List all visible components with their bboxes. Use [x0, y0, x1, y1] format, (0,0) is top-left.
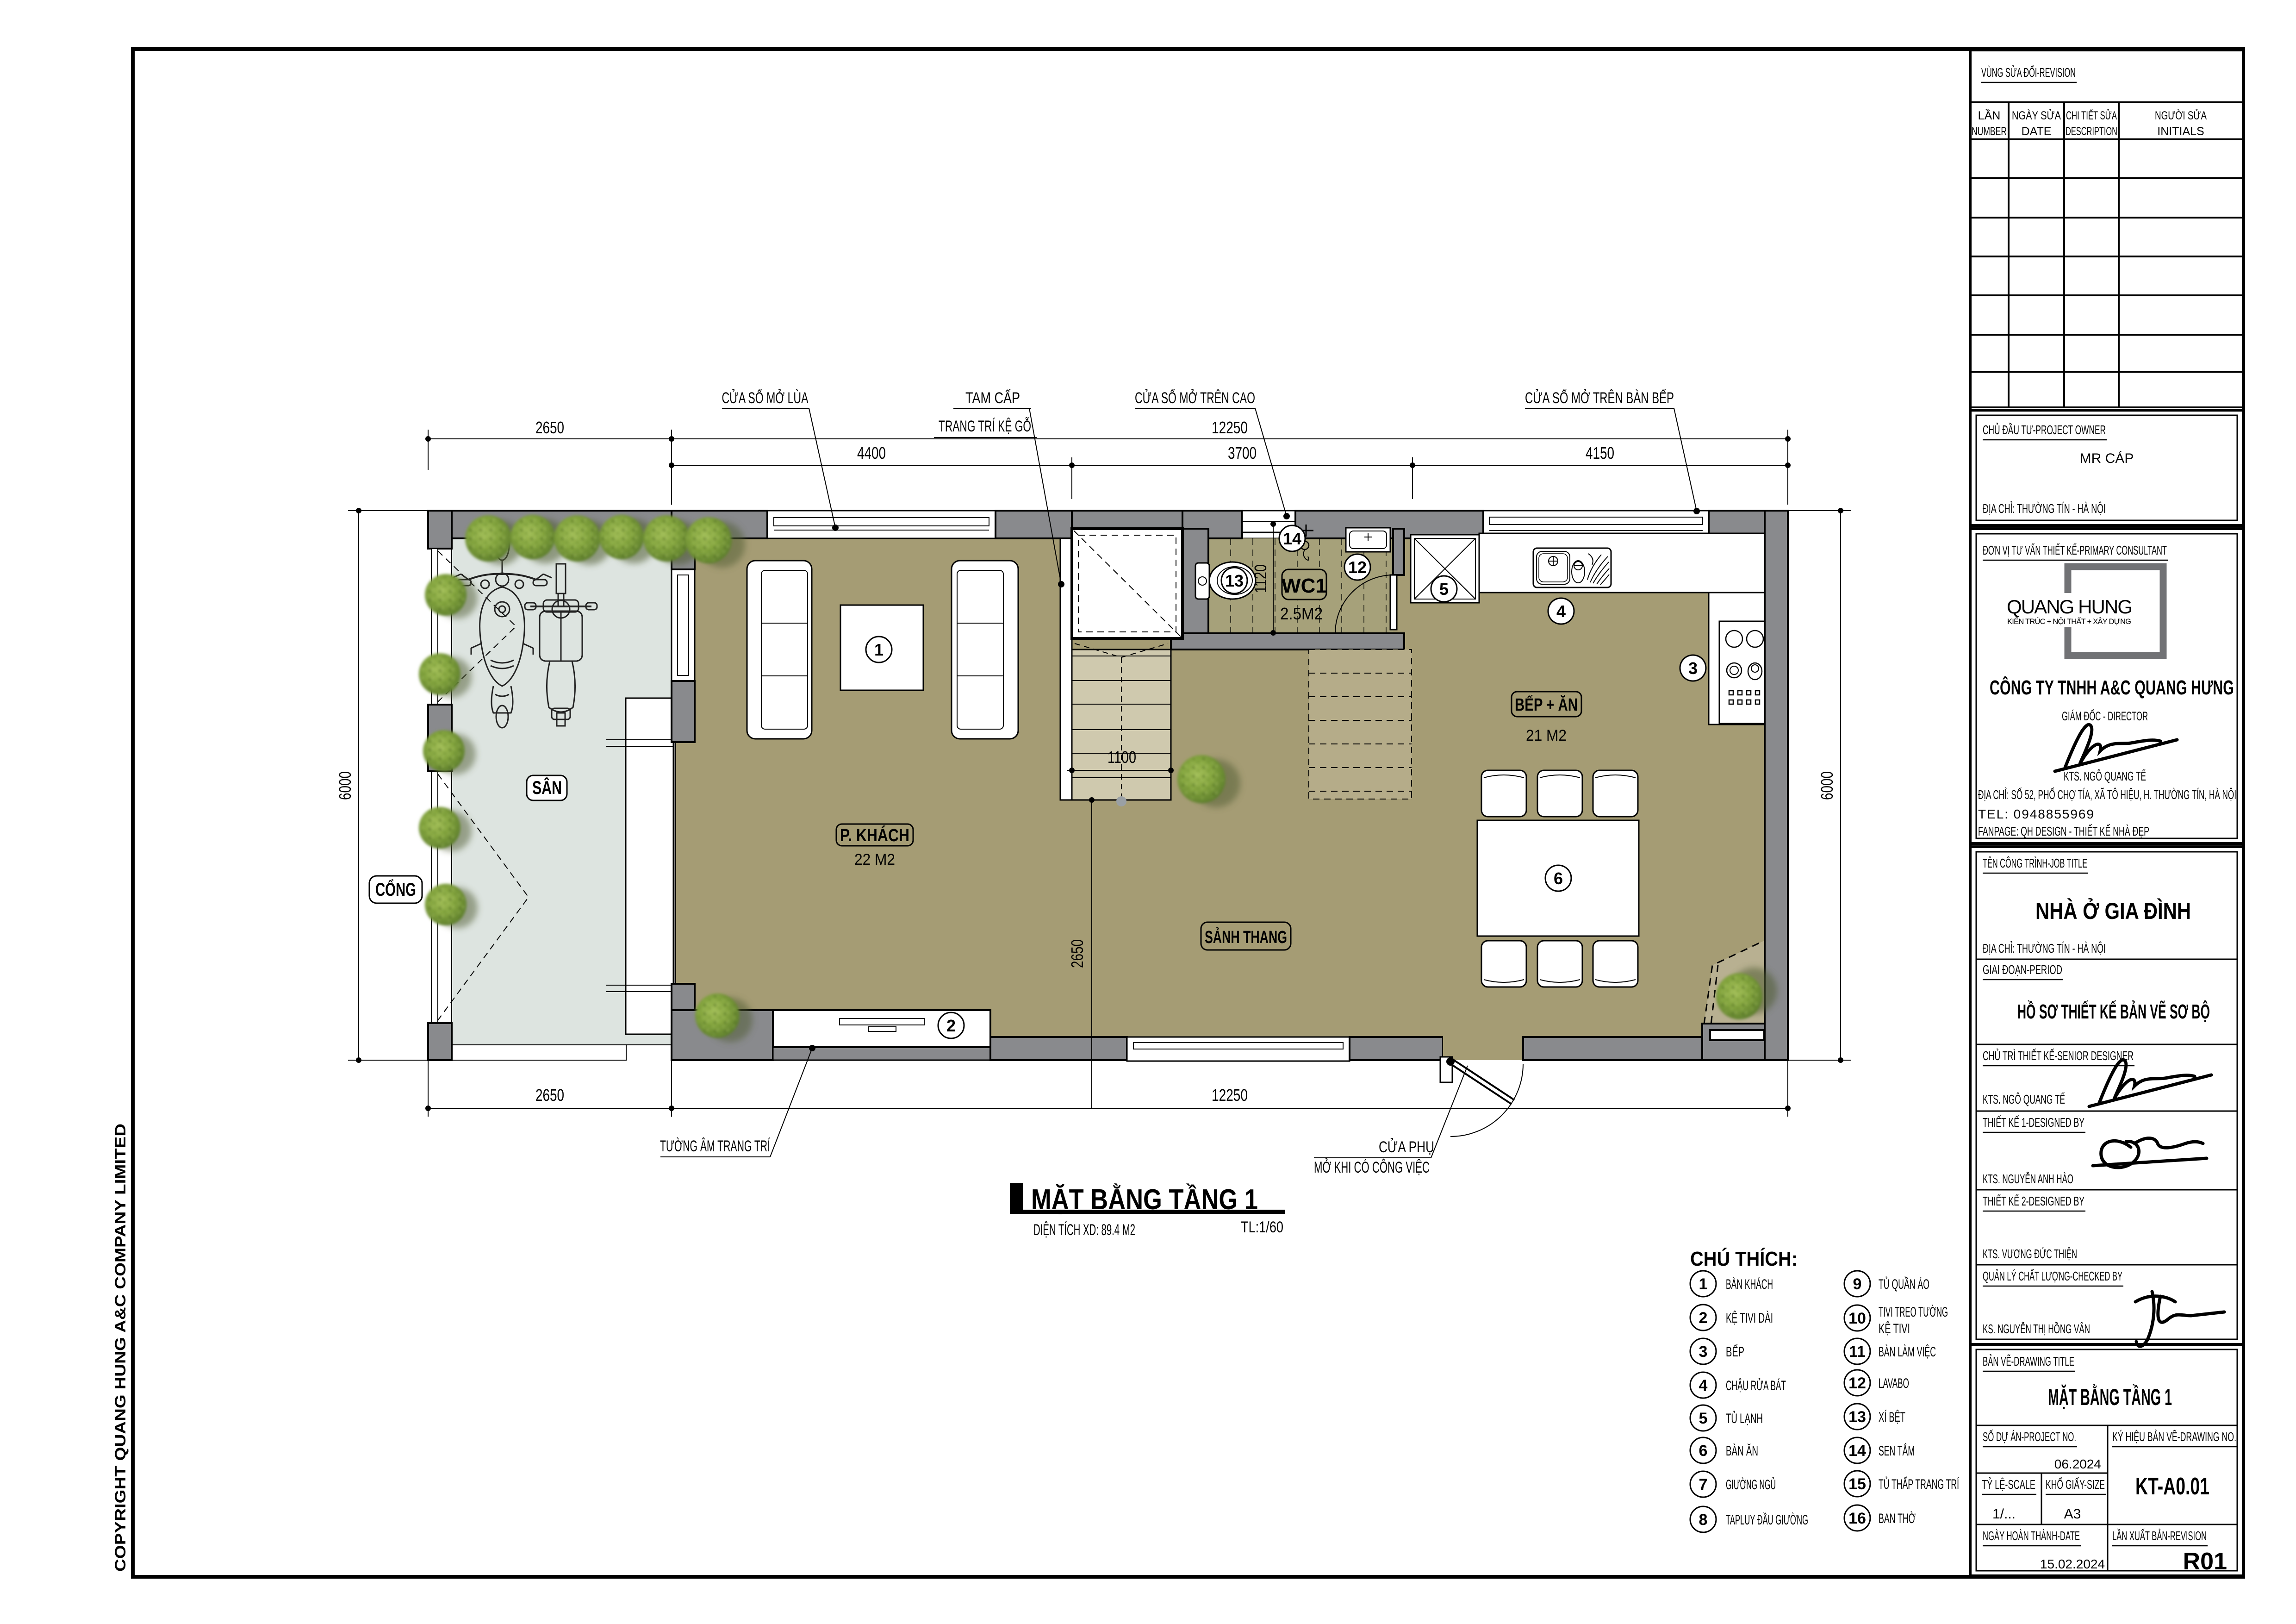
svg-text:2650: 2650: [535, 1086, 564, 1105]
svg-text:KÝ HIỆU BẢN VẼ-DRAWING NO.: KÝ HIỆU BẢN VẼ-DRAWING NO.: [2112, 1429, 2236, 1444]
svg-text:KS. NGUYỄN THỊ HỒNG VÂN: KS. NGUYỄN THỊ HỒNG VÂN: [1983, 1322, 2090, 1336]
svg-text:SÂN: SÂN: [532, 777, 562, 798]
svg-text:TỦ THẤP TRANG TRÍ: TỦ THẤP TRANG TRÍ: [1879, 1476, 1959, 1492]
svg-text:DATE: DATE: [2022, 125, 2052, 138]
svg-text:CHỦ TRÌ THIẾT KẾ-SENIOR DESIGN: CHỦ TRÌ THIẾT KẾ-SENIOR DESIGNER: [1983, 1048, 2134, 1063]
svg-text:6000: 6000: [336, 771, 355, 800]
svg-text:4150: 4150: [1586, 443, 1614, 462]
svg-text:LẦN XUẤT BẢN-REVISION: LẦN XUẤT BẢN-REVISION: [2112, 1528, 2207, 1543]
svg-text:ĐỊA CHỈ: THƯỜNG TÍN - HÀ NỘI: ĐỊA CHỈ: THƯỜNG TÍN - HÀ NỘI: [1983, 501, 2106, 516]
svg-text:CHẬU RỬA BÁT: CHẬU RỬA BÁT: [1726, 1378, 1786, 1393]
svg-text:HỒ SƠ THIẾT KẾ BẢN VẼ SƠ BỘ: HỒ SƠ THIẾT KẾ BẢN VẼ SƠ BỘ: [2017, 999, 2210, 1023]
svg-text:5: 5: [1439, 580, 1449, 599]
svg-text:THIẾT KẾ 1-DESIGNED BY: THIẾT KẾ 1-DESIGNED BY: [1983, 1115, 2084, 1130]
svg-text:TỦ QUẦN ÁO: TỦ QUẦN ÁO: [1879, 1276, 1929, 1292]
svg-text:NHÀ Ở GIA ĐÌNH: NHÀ Ở GIA ĐÌNH: [2035, 898, 2191, 924]
svg-text:1: 1: [1699, 1275, 1708, 1293]
svg-text:TƯỜNG ÂM TRANG TRÍ: TƯỜNG ÂM TRANG TRÍ: [660, 1137, 770, 1155]
svg-text:14: 14: [1848, 1442, 1866, 1460]
svg-text:A3: A3: [2064, 1506, 2081, 1522]
svg-text:3: 3: [1688, 659, 1698, 678]
svg-text:BÀN ĂN: BÀN ĂN: [1726, 1443, 1758, 1459]
svg-text:COPYRIGHT QUANG HUNG A&C COMPA: COPYRIGHT QUANG HUNG A&C COMPANY LIMITED: [112, 1124, 129, 1572]
svg-text:CHỦ ĐẦU TƯ-PROJECT OWNER: CHỦ ĐẦU TƯ-PROJECT OWNER: [1983, 422, 2106, 437]
svg-text:BÀN LÀM VIỆC: BÀN LÀM VIỆC: [1879, 1344, 1936, 1360]
svg-text:BÀN KHÁCH: BÀN KHÁCH: [1726, 1277, 1773, 1292]
svg-text:KTS. NGUYỄN ANH HÀO: KTS. NGUYỄN ANH HÀO: [1983, 1172, 2073, 1186]
svg-text:DESCRIPTION: DESCRIPTION: [2066, 125, 2117, 138]
svg-text:CỬA SỔ MỞ TRÊN BÀN BẾP: CỬA SỔ MỞ TRÊN BÀN BẾP: [1525, 389, 1674, 407]
svg-text:6: 6: [1699, 1442, 1708, 1460]
svg-text:FANPAGE: QH DESIGN - THIẾT KẾ: FANPAGE: QH DESIGN - THIẾT KẾ NHÀ ĐẸP: [1978, 824, 2149, 838]
svg-text:SEN TẮM: SEN TẮM: [1879, 1443, 1915, 1459]
svg-text:THIẾT KẾ 2-DESIGNED BY: THIẾT KẾ 2-DESIGNED BY: [1983, 1194, 2084, 1208]
svg-text:CHI TIẾT SỬA: CHI TIẾT SỬA: [2066, 108, 2117, 122]
svg-text:12250: 12250: [1212, 1086, 1248, 1105]
svg-text:TIVI TREO TƯỜNG: TIVI TREO TƯỜNG: [1879, 1305, 1948, 1320]
svg-text:SẢNH THANG: SẢNH THANG: [1205, 927, 1287, 947]
svg-text:DIỆN TÍCH XD: 89.4 M2: DIỆN TÍCH XD: 89.4 M2: [1033, 1221, 1135, 1239]
svg-text:1/...: 1/...: [1992, 1506, 2016, 1522]
svg-text:8: 8: [1699, 1511, 1708, 1529]
svg-text:LAVABO: LAVABO: [1879, 1376, 1909, 1391]
svg-text:9: 9: [1853, 1275, 1862, 1293]
svg-text:P. KHÁCH: P. KHÁCH: [840, 825, 909, 845]
svg-text:14: 14: [1283, 529, 1301, 548]
svg-text:1100: 1100: [1108, 748, 1136, 767]
svg-text:SỐ DỰ ÁN-PROJECT NO.: SỐ DỰ ÁN-PROJECT NO.: [1983, 1429, 2076, 1444]
svg-text:12: 12: [1848, 1374, 1866, 1392]
svg-text:21 M2: 21 M2: [1526, 727, 1567, 744]
svg-text:BẾP + ĂN: BẾP + ĂN: [1515, 694, 1578, 715]
svg-text:KTS. NGÔ QUANG TẾ: KTS. NGÔ QUANG TẾ: [1983, 1092, 2065, 1106]
svg-text:KỆ TIVI: KỆ TIVI: [1879, 1321, 1910, 1337]
svg-text:GIÁM ĐỐC - DIRECTOR: GIÁM ĐỐC - DIRECTOR: [2062, 708, 2148, 723]
svg-text:CỔNG: CỔNG: [375, 878, 416, 900]
svg-text:KTS. VƯƠNG ĐỨC THIỆN: KTS. VƯƠNG ĐỨC THIỆN: [1983, 1247, 2077, 1261]
svg-text:6: 6: [1554, 869, 1563, 888]
svg-text:2: 2: [946, 1016, 956, 1035]
svg-text:LẦN: LẦN: [1978, 109, 2001, 122]
svg-text:2: 2: [1699, 1309, 1708, 1327]
svg-text:3700: 3700: [1228, 443, 1257, 462]
svg-text:QUẢN LÝ CHẤT LƯỢNG-CHECKED BY: QUẢN LÝ CHẤT LƯỢNG-CHECKED BY: [1983, 1268, 2122, 1283]
svg-text:4: 4: [1699, 1377, 1708, 1394]
svg-text:11: 11: [1849, 1343, 1866, 1361]
svg-text:5: 5: [1699, 1410, 1708, 1427]
svg-text:06.2024: 06.2024: [2054, 1457, 2101, 1471]
svg-text:WC1: WC1: [1282, 575, 1327, 597]
svg-text:MR CÁP: MR CÁP: [2080, 451, 2134, 466]
svg-text:4: 4: [1556, 602, 1566, 621]
svg-text:TỶ LỆ-SCALE: TỶ LỆ-SCALE: [1982, 1477, 2035, 1492]
svg-text:ĐƠN VỊ TƯ VẤN THIẾT KẾ-PRIMARY: ĐƠN VỊ TƯ VẤN THIẾT KẾ-PRIMARY CONSULTAN…: [1983, 543, 2167, 557]
svg-text:3: 3: [1699, 1343, 1708, 1361]
svg-text:TÊN CÔNG TRÌNH-JOB TITLE: TÊN CÔNG TRÌNH-JOB TITLE: [1983, 856, 2087, 870]
svg-text:15: 15: [1848, 1475, 1866, 1493]
svg-text:TRANG TRÍ KỆ GỖ: TRANG TRÍ KỆ GỖ: [939, 418, 1031, 435]
svg-text:7: 7: [1699, 1476, 1708, 1493]
svg-text:NGÀY HOÀN THÀNH-DATE: NGÀY HOÀN THÀNH-DATE: [1983, 1529, 2080, 1543]
svg-text:BẢN VẼ-DRAWING TITLE: BẢN VẼ-DRAWING TITLE: [1983, 1354, 2074, 1368]
svg-text:16: 16: [1848, 1510, 1866, 1527]
svg-text:BẾP: BẾP: [1726, 1344, 1744, 1360]
svg-text:12: 12: [1348, 558, 1367, 577]
svg-text:GIAI ĐOẠN-PERIOD: GIAI ĐOẠN-PERIOD: [1983, 962, 2062, 977]
svg-text:CỬA SỔ MỞ LÙA: CỬA SỔ MỞ LÙA: [722, 389, 809, 407]
svg-text:2650: 2650: [535, 418, 564, 437]
svg-text:KTS. NGÔ QUANG TẾ: KTS. NGÔ QUANG TẾ: [2064, 769, 2146, 783]
svg-text:NUMBER: NUMBER: [1972, 125, 2007, 138]
svg-text:15.02.2024: 15.02.2024: [2040, 1557, 2105, 1571]
svg-text:2650: 2650: [1068, 939, 1087, 968]
svg-text:VÙNG SỬA ĐỔI-REVISION: VÙNG SỬA ĐỔI-REVISION: [1981, 65, 2076, 80]
svg-text:1: 1: [874, 640, 884, 659]
svg-text:4400: 4400: [857, 443, 886, 462]
svg-text:KIẾN TRÚC + NỘI THẤT + XÂY DỰN: KIẾN TRÚC + NỘI THẤT + XÂY DỰNG: [2007, 617, 2131, 626]
svg-text:ĐỊA CHỈ: THƯỜNG TÍN - HÀ NỘI: ĐỊA CHỈ: THƯỜNG TÍN - HÀ NỘI: [1983, 941, 2106, 956]
svg-text:2.5M2: 2.5M2: [1280, 604, 1323, 623]
svg-text:QUANG HUNG: QUANG HUNG: [2007, 596, 2133, 618]
svg-text:NGÀY SỬA: NGÀY SỬA: [2012, 108, 2061, 122]
svg-text:ĐỊA CHỈ: SỐ 52, PHỐ CHỢ TÍA, X: ĐỊA CHỈ: SỐ 52, PHỐ CHỢ TÍA, XÃ TÔ HIỆU,…: [1978, 787, 2236, 802]
svg-text:22 M2: 22 M2: [854, 851, 895, 868]
svg-text:NGƯỜI SỬA: NGƯỜI SỬA: [2155, 108, 2207, 122]
svg-text:XÍ BỆT: XÍ BỆT: [1879, 1410, 1905, 1425]
svg-text:KHỔ GIẤY-SIZE: KHỔ GIẤY-SIZE: [2046, 1477, 2105, 1492]
svg-text:1120: 1120: [1251, 564, 1270, 593]
svg-text:TEL: 0948855969: TEL: 0948855969: [1978, 807, 2094, 821]
svg-text:CHÚ THÍCH:: CHÚ THÍCH:: [1690, 1247, 1798, 1270]
svg-text:13: 13: [1848, 1408, 1866, 1426]
svg-text:MẶT BẰNG TẦNG 1: MẶT BẰNG TẦNG 1: [2048, 1384, 2172, 1410]
svg-text:R01: R01: [2183, 1548, 2227, 1575]
svg-text:CỬA PHỤ: CỬA PHỤ: [1379, 1138, 1434, 1156]
svg-text:TAM CẤP: TAM CẤP: [965, 389, 1020, 407]
svg-text:GIƯỜNG NGỦ: GIƯỜNG NGỦ: [1726, 1477, 1776, 1493]
svg-text:INITIALS: INITIALS: [2157, 125, 2204, 138]
svg-text:KT-A0.01: KT-A0.01: [2135, 1473, 2209, 1500]
svg-text:BAN THỜ: BAN THỜ: [1879, 1511, 1916, 1526]
svg-text:TL:1/60: TL:1/60: [1241, 1218, 1283, 1236]
svg-text:CỬA SỔ MỞ TRÊN CAO: CỬA SỔ MỞ TRÊN CAO: [1135, 389, 1255, 407]
svg-text:CÔNG TY TNHH A&C QUANG HƯNG: CÔNG TY TNHH A&C QUANG HƯNG: [1990, 675, 2234, 699]
svg-text:MỞ KHI CÓ CÔNG VIỆC: MỞ KHI CÓ CÔNG VIỆC: [1314, 1159, 1430, 1176]
svg-text:TỦ LẠNH: TỦ LẠNH: [1726, 1411, 1763, 1426]
svg-text:6000: 6000: [1817, 771, 1836, 800]
svg-text:10: 10: [1848, 1310, 1866, 1327]
svg-text:KỆ TIVI DÀI: KỆ TIVI DÀI: [1726, 1311, 1773, 1326]
svg-text:TAPLUY ĐẦU GIƯỜNG: TAPLUY ĐẦU GIƯỜNG: [1726, 1512, 1808, 1528]
svg-text:13: 13: [1225, 571, 1244, 590]
svg-text:12250: 12250: [1212, 418, 1248, 437]
